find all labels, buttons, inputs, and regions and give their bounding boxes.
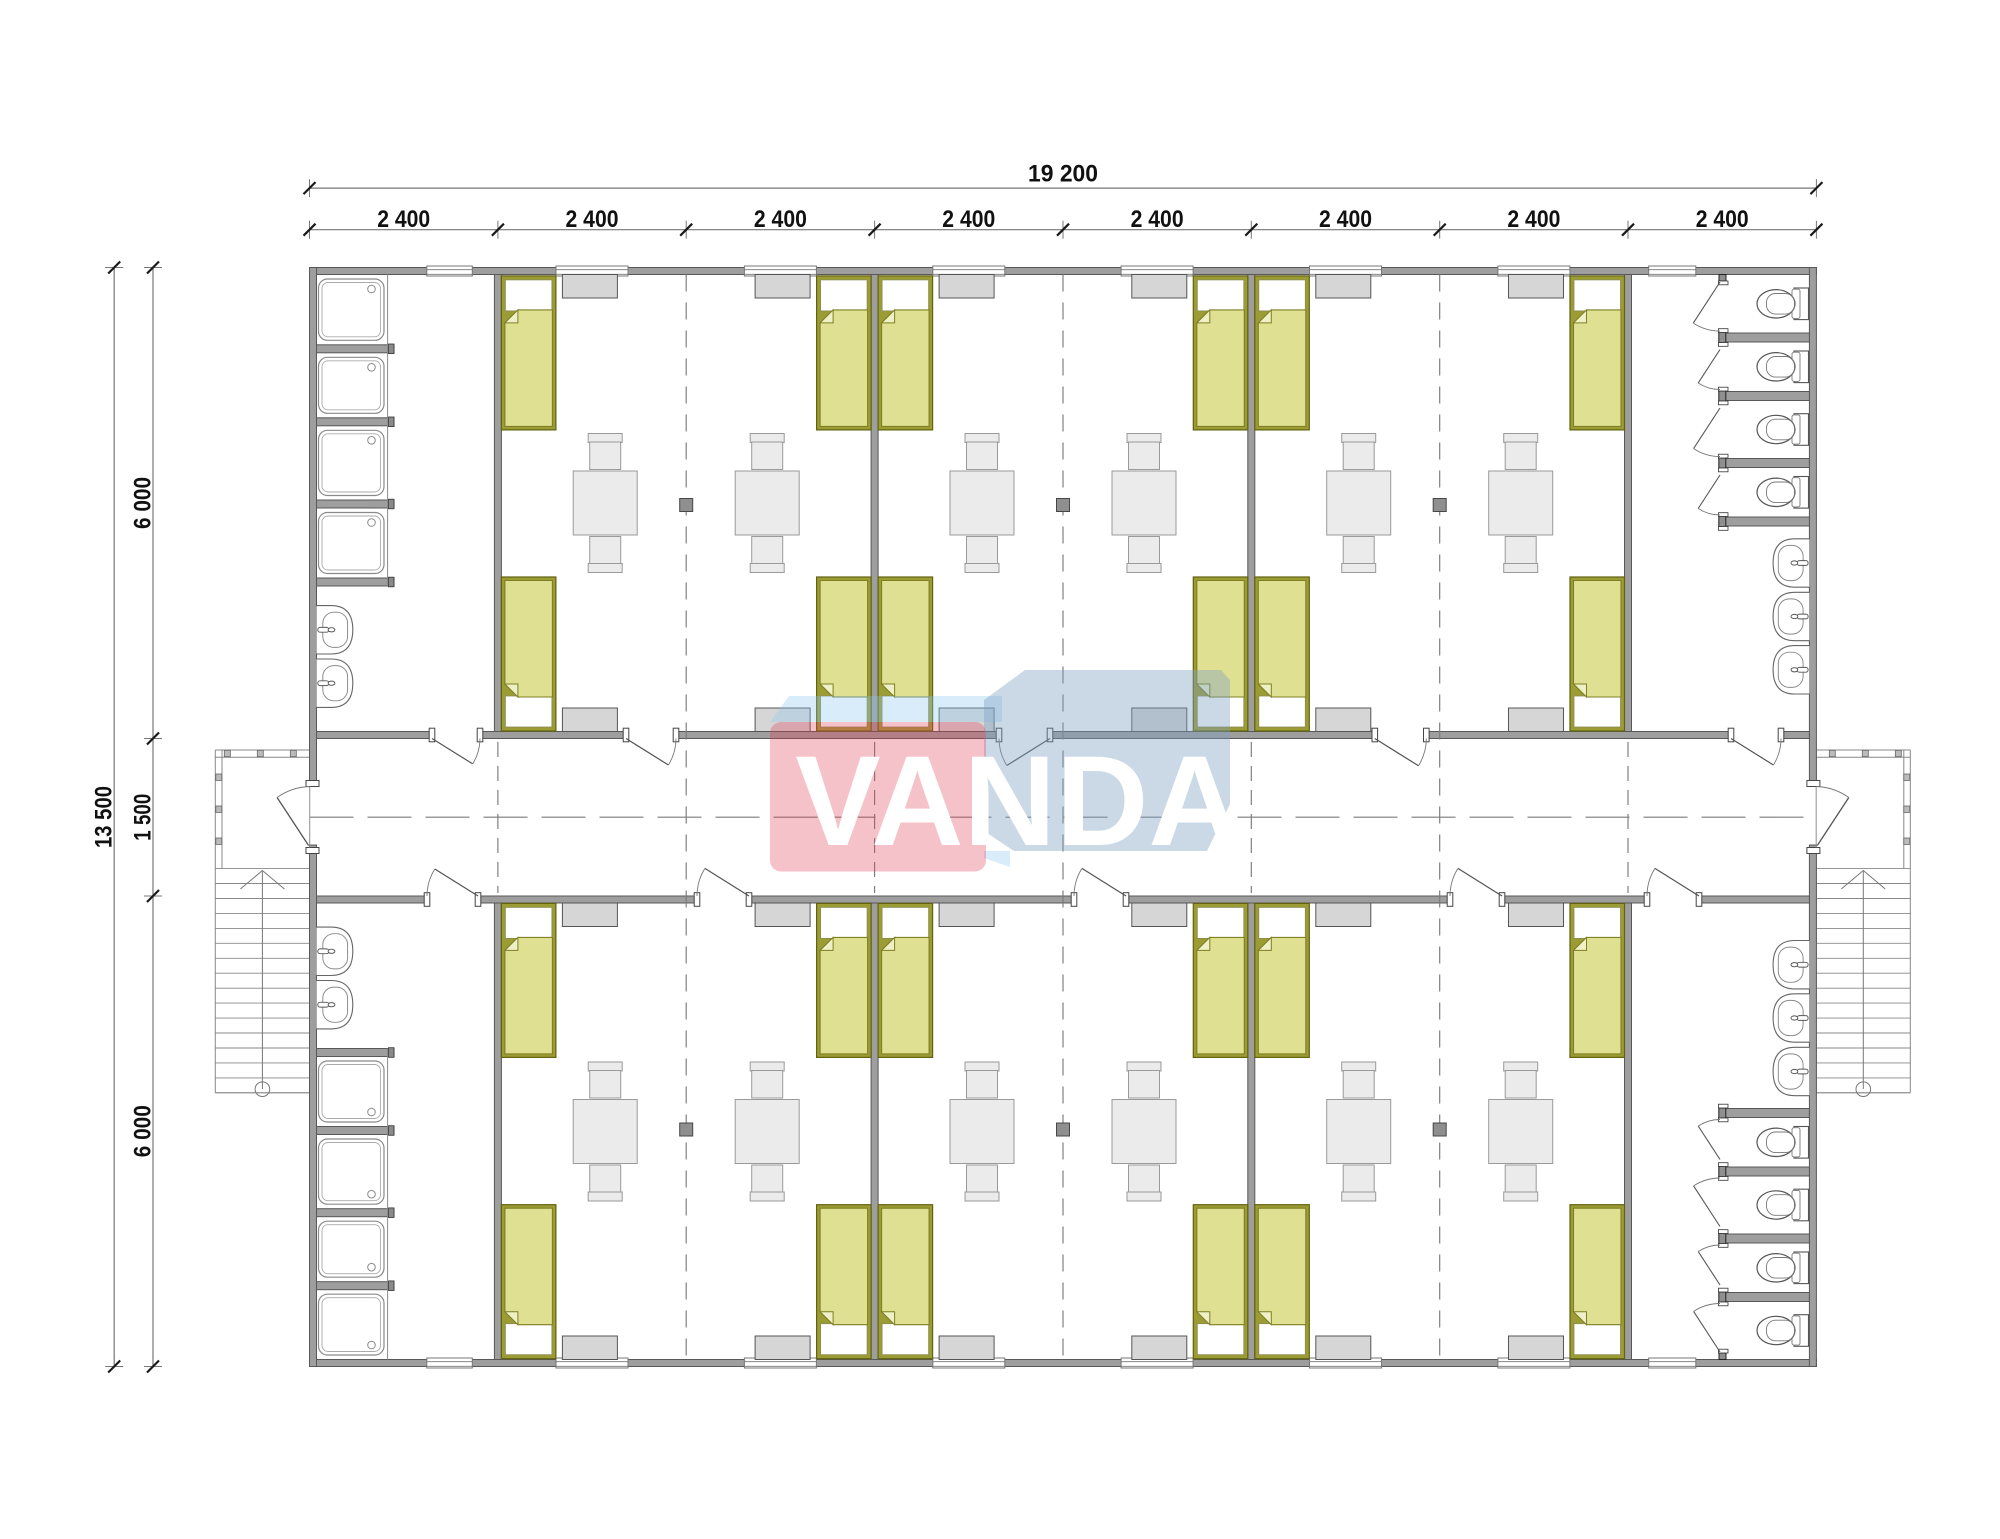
- svg-text:2 400: 2 400: [942, 206, 995, 233]
- svg-text:13 500: 13 500: [91, 786, 118, 848]
- svg-text:2 400: 2 400: [377, 206, 430, 233]
- svg-text:2 400: 2 400: [754, 206, 807, 233]
- svg-text:2 400: 2 400: [1696, 206, 1749, 233]
- svg-text:VANDA: VANDA: [795, 730, 1241, 873]
- svg-text:2 400: 2 400: [1131, 206, 1184, 233]
- svg-text:2 400: 2 400: [1507, 206, 1560, 233]
- svg-text:1 500: 1 500: [130, 794, 157, 841]
- svg-text:6 000: 6 000: [130, 1105, 157, 1157]
- svg-text:2 400: 2 400: [1319, 206, 1372, 233]
- svg-text:19 200: 19 200: [1028, 161, 1098, 188]
- svg-text:2 400: 2 400: [566, 206, 619, 233]
- svg-text:6 000: 6 000: [130, 477, 157, 529]
